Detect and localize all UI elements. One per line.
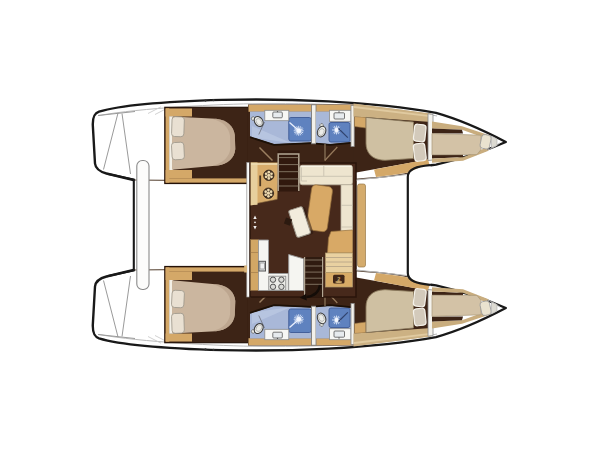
svg-text:2: 2: [337, 276, 340, 282]
